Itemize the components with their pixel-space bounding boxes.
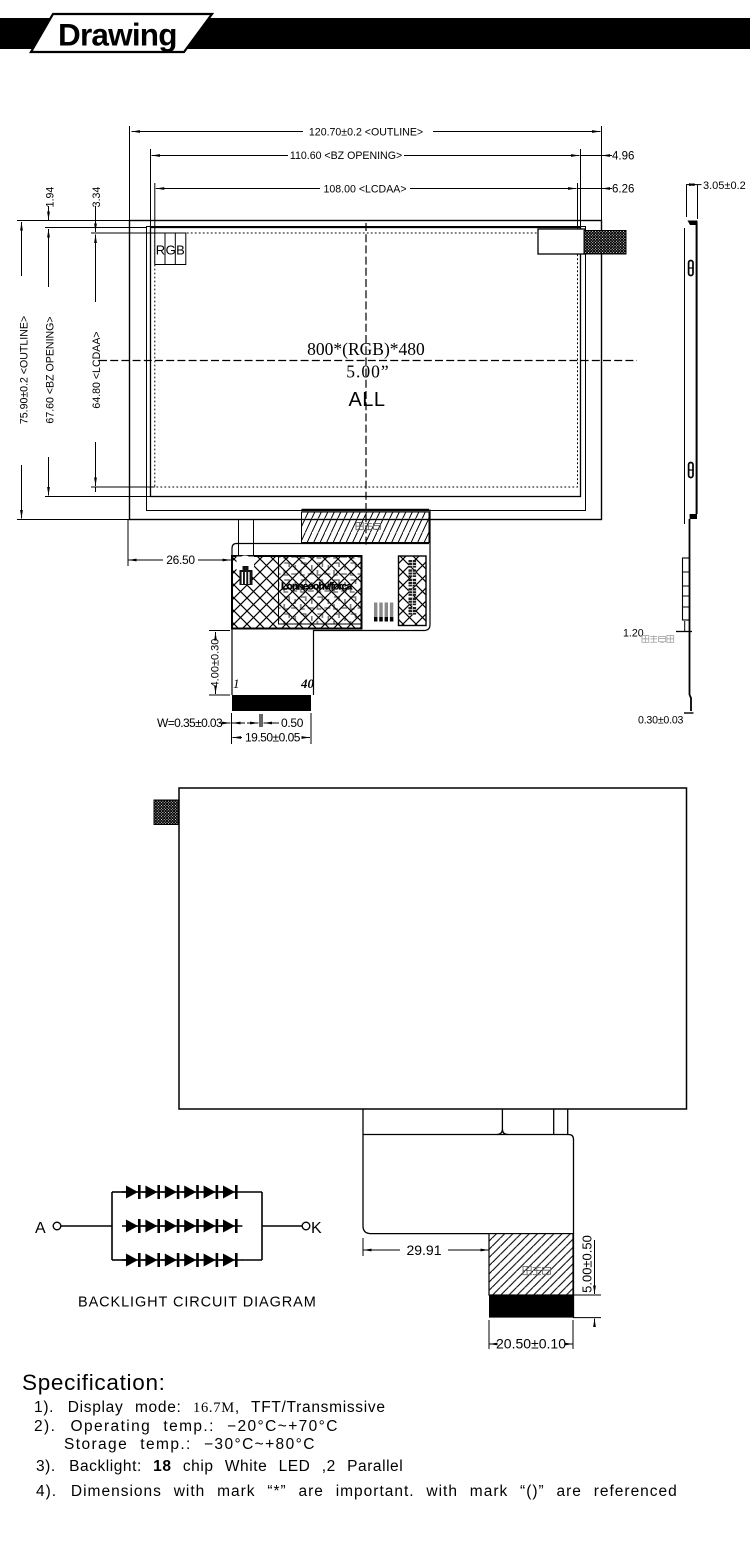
svg-text:4). Dimensions with mark “*” a: 4). Dimensions with mark “*” are importa… — [36, 1483, 678, 1500]
svg-text:26.50: 26.50 — [166, 553, 195, 567]
svg-text:20.50±0.10: 20.50±0.10 — [496, 1336, 566, 1352]
svg-text:75.90±0.2 <OUTLINE>: 75.90±0.2 <OUTLINE> — [19, 316, 31, 424]
svg-text:0.30±0.03: 0.30±0.03 — [638, 715, 684, 727]
svg-text:6.26: 6.26 — [612, 184, 634, 196]
svg-text:120.70±0.2 <OUTLINE>: 120.70±0.2 <OUTLINE> — [309, 127, 423, 139]
svg-text:K: K — [311, 1220, 322, 1237]
svg-text:5.00±0.50: 5.00±0.50 — [580, 1235, 595, 1293]
svg-text:Specification:: Specification: — [22, 1370, 166, 1395]
svg-text:64.80 <LCDAA>: 64.80 <LCDAA> — [91, 331, 103, 408]
svg-text:1.94: 1.94 — [45, 187, 57, 208]
svg-text:1: 1 — [233, 676, 240, 691]
svg-text:800*(RGB)*480: 800*(RGB)*480 — [307, 339, 425, 359]
svg-text:1.20: 1.20 — [623, 628, 644, 640]
svg-text:4.00±0.30: 4.00±0.30 — [210, 639, 222, 688]
svg-text:108.00 <LCDAA>: 108.00 <LCDAA> — [323, 184, 406, 196]
svg-text:4.96: 4.96 — [612, 151, 634, 163]
svg-text:3.05±0.2: 3.05±0.2 — [703, 180, 746, 192]
svg-text:29.91: 29.91 — [406, 1242, 441, 1258]
svg-text:1). Display mode: 16.7M, TFT/T: 1). Display mode: 16.7M, TFT/Transmissiv… — [34, 1399, 386, 1416]
svg-text:ALL: ALL — [348, 389, 385, 411]
svg-text:40: 40 — [300, 676, 315, 691]
svg-text:5.00”: 5.00” — [346, 362, 389, 382]
svg-text:RGB: RGB — [156, 243, 185, 258]
svg-text:W=0.35±0.03: W=0.35±0.03 — [157, 716, 223, 730]
svg-text:0.50: 0.50 — [281, 716, 304, 730]
svg-text:110.60 <BZ OPENING>: 110.60 <BZ OPENING> — [290, 150, 402, 162]
svg-text:Storage temp.: −30°C~+80°C: Storage temp.: −30°C~+80°C — [64, 1436, 316, 1453]
svg-text:Lonneoohv/forca: Lonneoohv/forca — [281, 581, 352, 593]
svg-text:3). Backlight: 18 chip White L: 3). Backlight: 18 chip White LED ,2 Para… — [36, 1458, 403, 1475]
svg-text:BACKLIGHT CIRCUIT DIAGRAM: BACKLIGHT CIRCUIT DIAGRAM — [78, 1295, 317, 1311]
svg-text:67.60 <BZ OPENING>: 67.60 <BZ OPENING> — [45, 316, 57, 423]
svg-text:Drawing: Drawing — [58, 17, 177, 53]
svg-text:3.34: 3.34 — [91, 187, 103, 208]
svg-text:A: A — [35, 1220, 46, 1237]
svg-text:19.50±0.05: 19.50±0.05 — [245, 731, 301, 745]
svg-text:2). Operating temp.: −20°C~+70: 2). Operating temp.: −20°C~+70°C — [34, 1418, 339, 1435]
